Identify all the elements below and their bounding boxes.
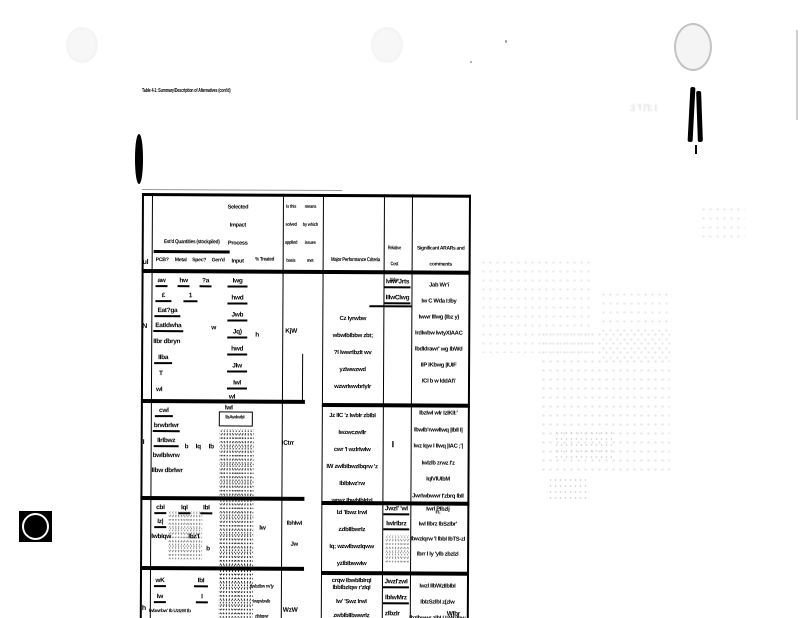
grid-cell: wI (156, 386, 162, 393)
criteria-text: Jz IIC 'z IwbIr zbIbI IwzwczwIIr cwr 'I … (323, 408, 381, 510)
grid-cell: EatIdwha (153, 322, 183, 332)
grid-cell: IqI (178, 504, 190, 514)
grid-cell: IbI (194, 577, 208, 587)
relative-entry: I (392, 441, 394, 448)
grid-cell: IIrIbwz (154, 437, 179, 447)
comments-text: Jab Wr'i Iw C Wda I:Iby Iwwr IIIwg (Ibz … (410, 277, 468, 389)
boxed-value-label: IwI (225, 404, 233, 411)
grid-cell: hw (178, 277, 190, 287)
grid-cell: b (185, 443, 189, 450)
selected-entry: hwd (227, 294, 247, 304)
mid-value: dwbzIbw rw'|y IwqwbwIb zIbbqwr (249, 580, 275, 618)
pen-mark-stroke (696, 91, 703, 142)
boxed-value: IbAwIwbI (220, 414, 250, 421)
row-label: N (142, 323, 147, 330)
row-label: l (140, 517, 142, 524)
treated-value: WzW (283, 607, 298, 614)
grid-cell: cbI (154, 504, 166, 514)
grid-cell: Iw (154, 593, 166, 603)
table-line (142, 193, 471, 198)
grid-cell: Iz| (154, 518, 166, 528)
page-title: Table 4-1: Summary/Description of Altern… (142, 88, 230, 95)
relative-entry: JwzI'zwI (383, 578, 409, 588)
grid-cell: brwbrIwr (153, 422, 180, 432)
treated-value: h (255, 332, 259, 339)
table-line (140, 193, 144, 618)
criteria-text: IbbIbzIqw r'zIqI Iw' 'Swz IrwI zwbIbIIbw… (323, 581, 380, 618)
stray-cell-text: WIbr (447, 611, 460, 618)
table-line (154, 250, 230, 253)
criteria-text: IzI 'Ibwz IrwI zzIbIIbwrIz Iq; wzwIbwzIq… (323, 505, 380, 590)
treated-value: Iw (259, 525, 265, 532)
pen-arrow-line (369, 305, 411, 307)
ink-blob (135, 134, 143, 184)
relative-entry: zIbzIr (385, 610, 400, 617)
selected-entry: hwd (227, 345, 247, 355)
grid-cell: IIbw dbrIwr (152, 467, 183, 474)
criteria-text: Cz Iyrwbw wbwIbIbbw zbt; ?I IwwrIbzIt wv… (324, 311, 381, 396)
header-sub-col: Spec? (191, 257, 208, 264)
header-treated-col: % Treated (252, 257, 278, 264)
grid-cell: b (206, 545, 210, 552)
relative-entry: IIIwCIwg (384, 294, 410, 304)
selected-entry: JIw (227, 362, 247, 372)
scanned-document-page: ;| 'I |'|; | Table 4-1: Summary/Descript… (0, 0, 800, 618)
header-sub-col: PCB? (154, 257, 171, 264)
header-group-label: Est'd Quantities (stockpiled) (159, 239, 224, 246)
table-line (142, 189, 342, 191)
row-label: h (142, 605, 146, 612)
grid-cell: £ (155, 292, 171, 302)
grid-cell: w (211, 324, 216, 331)
grid-cell: Eat?ga (154, 307, 180, 317)
header-comments-col: Significant ARARs and comments (414, 240, 467, 272)
table-line (141, 399, 305, 404)
grid-cell: 1 (183, 292, 197, 302)
comments-text: IwrI PIbzIj IwI IIbrz IbSzIbr' IbwzIqrw … (409, 502, 466, 562)
header-selected-col: Selected Impact Process Input (226, 198, 250, 270)
row-label: I (143, 439, 145, 446)
grid-cell: bwIbIwrw (153, 452, 180, 459)
grid-cell: Ibz'I (188, 533, 199, 540)
grid-cell: Iwbwrbw' Ib UzIzW Ib (149, 608, 191, 615)
header-basis-col-a: Is this solved applied basis (284, 199, 299, 271)
grid-cell: Ib (209, 443, 214, 450)
grid-cell: ?a (200, 277, 212, 287)
grid-cell: Iq (196, 443, 201, 450)
selected-entry: Jq) (227, 328, 247, 338)
grid-cell: aw (156, 277, 168, 287)
grid-cell: IIba (154, 354, 172, 364)
grid-cell: IwbIqw (151, 533, 171, 540)
scan-layer: Table 4-1: Summary/Description of Altern… (0, 0, 800, 618)
relative-entry: Iww Jrts (385, 278, 411, 288)
alternatives-table: ul Est'd Quantities (stockpiled) PCB? Me… (140, 193, 471, 618)
header-sub-col: Metal (172, 257, 190, 264)
grid-cell: wK (154, 577, 166, 587)
applied-value: IbhIwI Jw (284, 514, 304, 556)
relative-entry: IwIrIbrz (383, 520, 409, 530)
grid-cell: IbI (200, 504, 212, 514)
selected-entry: Jwb (227, 311, 247, 321)
table-line (302, 354, 304, 401)
grid-cell: cwl (155, 407, 173, 417)
applied-value: KjW (285, 328, 297, 335)
pen-mark-tick (695, 145, 697, 154)
copier-noise-patch (385, 535, 409, 563)
selected-entry: Iwg (228, 277, 248, 287)
selected-entry: wI (229, 393, 235, 400)
pen-mark-stroke (688, 87, 696, 142)
relative-entry: IbIwMrz (383, 594, 409, 604)
header-criteria-col: Major Performance Criteria (331, 257, 376, 264)
relative-entry: JwzI' 'wI (383, 505, 409, 515)
grid-cell: I (196, 593, 208, 603)
treated-value: ICtrr (282, 440, 294, 447)
header-basis-col-b: means by which issues met (302, 199, 319, 271)
selected-entry: IwI (227, 379, 247, 389)
grid-cell: IIbr dbryn (153, 338, 180, 345)
header-unit: ul (143, 259, 149, 266)
grid-cell: T (159, 370, 163, 377)
